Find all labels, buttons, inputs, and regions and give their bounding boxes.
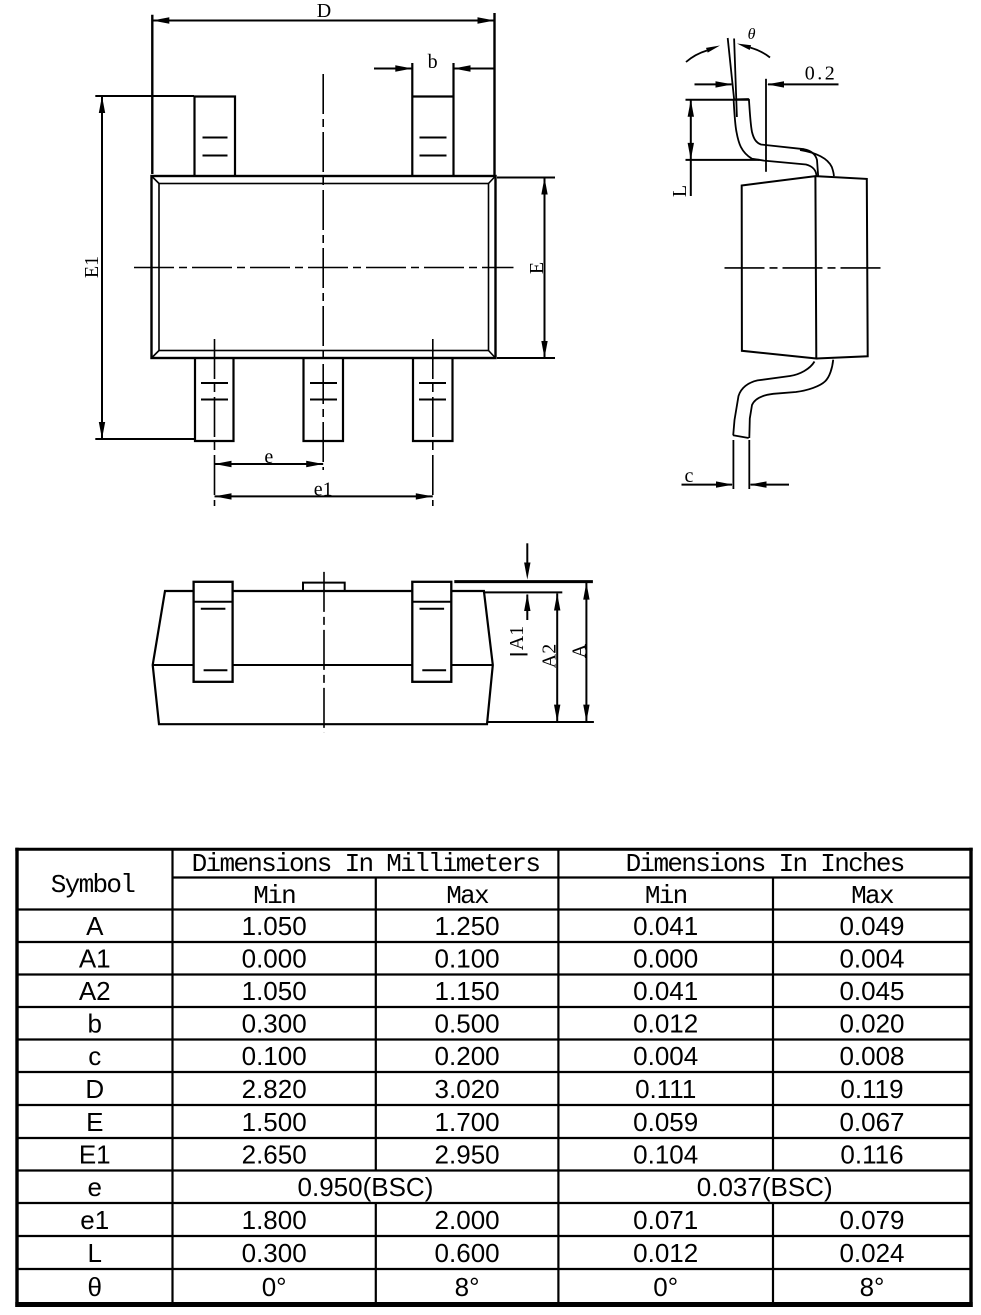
- svg-text:0.071: 0.071: [633, 1205, 698, 1235]
- svg-text:0.300: 0.300: [242, 1238, 307, 1268]
- svg-text:0°: 0°: [262, 1272, 287, 1302]
- svg-text:0.012: 0.012: [633, 1009, 698, 1039]
- svg-text:1.150: 1.150: [435, 976, 500, 1006]
- svg-text:8°: 8°: [860, 1272, 885, 1302]
- svg-text:Dimensions In Inches: Dimensions In Inches: [626, 849, 904, 879]
- svg-text:0.600: 0.600: [435, 1238, 500, 1268]
- svg-text:1.250: 1.250: [435, 911, 500, 941]
- svg-text:2.820: 2.820: [242, 1074, 307, 1104]
- svg-text:0.100: 0.100: [242, 1041, 307, 1071]
- svg-text:2.950: 2.950: [435, 1140, 500, 1170]
- svg-text:A: A: [569, 643, 591, 658]
- svg-text:c: c: [685, 465, 694, 487]
- svg-text:3.020: 3.020: [435, 1074, 500, 1104]
- svg-text:0.200: 0.200: [435, 1041, 500, 1071]
- svg-text:Max: Max: [851, 881, 894, 911]
- svg-text:Max: Max: [446, 881, 489, 911]
- svg-text:1.500: 1.500: [242, 1107, 307, 1137]
- svg-text:0.104: 0.104: [633, 1140, 698, 1170]
- svg-text:0.037(BSC): 0.037(BSC): [697, 1172, 833, 1202]
- svg-text:e1: e1: [314, 478, 333, 500]
- svg-text:0.100: 0.100: [435, 944, 500, 974]
- svg-text:A: A: [86, 911, 104, 941]
- svg-text:L: L: [88, 1238, 102, 1268]
- svg-text:0.045: 0.045: [839, 976, 904, 1006]
- svg-text:e1: e1: [80, 1205, 109, 1235]
- svg-text:0.041: 0.041: [633, 911, 698, 941]
- svg-text:0.008: 0.008: [839, 1041, 904, 1071]
- svg-text:L: L: [669, 185, 691, 197]
- svg-text:b: b: [88, 1009, 102, 1039]
- svg-text:E: E: [526, 262, 548, 274]
- svg-text:0.041: 0.041: [633, 976, 698, 1006]
- svg-text:0.067: 0.067: [839, 1107, 904, 1137]
- svg-text:E1: E1: [79, 1140, 111, 1170]
- svg-text:c: c: [88, 1041, 101, 1071]
- svg-text:0.020: 0.020: [839, 1009, 904, 1039]
- svg-text:0.950(BSC): 0.950(BSC): [298, 1172, 434, 1202]
- svg-text:0.000: 0.000: [633, 944, 698, 974]
- svg-text:0.300: 0.300: [242, 1009, 307, 1039]
- svg-text:Min: Min: [253, 881, 295, 911]
- svg-text:0.024: 0.024: [839, 1238, 904, 1268]
- svg-text:A2: A2: [79, 976, 111, 1006]
- svg-text:E1: E1: [81, 256, 103, 278]
- svg-text:e: e: [88, 1172, 102, 1202]
- svg-text:θ: θ: [88, 1272, 102, 1302]
- svg-text:0°: 0°: [653, 1272, 678, 1302]
- svg-text:1.800: 1.800: [242, 1205, 307, 1235]
- svg-text:0.049: 0.049: [839, 911, 904, 941]
- svg-text:2.000: 2.000: [435, 1205, 500, 1235]
- svg-text:0.000: 0.000: [242, 944, 307, 974]
- svg-text:1.050: 1.050: [242, 911, 307, 941]
- svg-text:A1: A1: [506, 626, 528, 650]
- svg-text:D: D: [85, 1074, 104, 1104]
- svg-text:0.111: 0.111: [635, 1074, 696, 1104]
- svg-text:2.650: 2.650: [242, 1140, 307, 1170]
- svg-text:b: b: [428, 51, 438, 73]
- svg-text:θ: θ: [748, 26, 756, 43]
- svg-text:0.004: 0.004: [839, 944, 904, 974]
- svg-text:0.012: 0.012: [633, 1238, 698, 1268]
- svg-text:Symbol: Symbol: [51, 870, 136, 900]
- svg-text:8°: 8°: [455, 1272, 480, 1302]
- svg-text:Dimensions In Millimeters: Dimensions In Millimeters: [192, 849, 540, 879]
- svg-text:A1: A1: [79, 944, 111, 974]
- svg-text:0.119: 0.119: [840, 1074, 903, 1104]
- svg-text:Min: Min: [645, 881, 687, 911]
- svg-text:0.079: 0.079: [839, 1205, 904, 1235]
- svg-text:0.116: 0.116: [840, 1140, 903, 1170]
- svg-text:0.2: 0.2: [805, 63, 838, 85]
- svg-text:D: D: [317, 0, 331, 22]
- svg-text:1.050: 1.050: [242, 976, 307, 1006]
- svg-text:E: E: [86, 1107, 103, 1137]
- svg-text:1.700: 1.700: [435, 1107, 500, 1137]
- svg-text:0.004: 0.004: [633, 1041, 698, 1071]
- svg-text:0.059: 0.059: [633, 1107, 698, 1137]
- svg-text:e: e: [264, 446, 273, 468]
- svg-text:A2: A2: [539, 644, 561, 668]
- svg-text:0.500: 0.500: [435, 1009, 500, 1039]
